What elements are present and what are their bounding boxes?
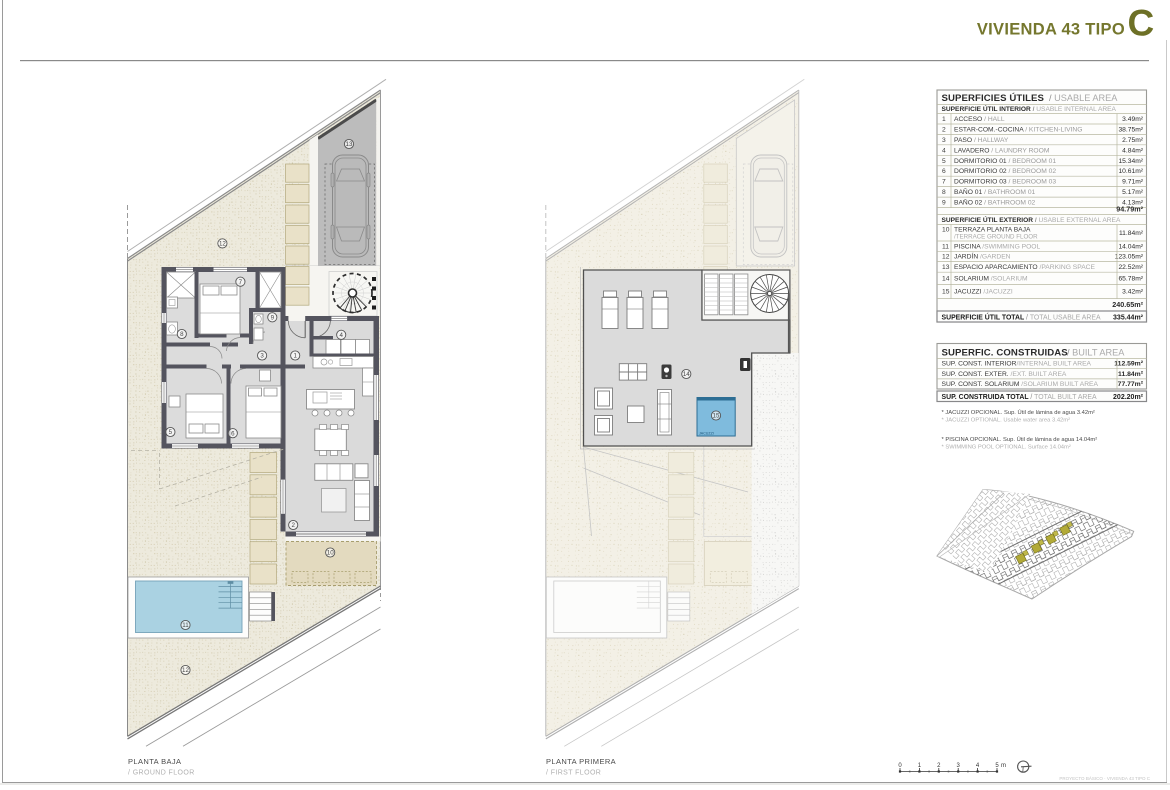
svg-text:112.59m²: 112.59m² <box>1114 361 1143 368</box>
svg-text:240.65m²: 240.65m² <box>1112 300 1143 309</box>
svg-text:5: 5 <box>169 429 173 436</box>
svg-text:7: 7 <box>942 179 946 186</box>
svg-text:PASO / HALLWAY: PASO / HALLWAY <box>954 137 1009 144</box>
svg-text:* JACUZZI OPTIONAL. Usable wat: * JACUZZI OPTIONAL. Usable water area 3.… <box>942 418 1071 424</box>
svg-text:12: 12 <box>182 667 189 674</box>
svg-text:2.75m²: 2.75m² <box>1122 137 1144 144</box>
svg-text:11: 11 <box>942 243 949 250</box>
svg-text:2: 2 <box>942 126 946 133</box>
svg-text:SUPERFICIES ÚTILES: SUPERFICIES ÚTILES <box>942 92 1045 104</box>
svg-text:/ FIRST FLOOR: / FIRST FLOOR <box>546 770 601 777</box>
svg-text:65.78m²: 65.78m² <box>1118 276 1143 283</box>
svg-text:3: 3 <box>260 353 264 360</box>
svg-text:PLANTA PRIMERA: PLANTA PRIMERA <box>546 757 616 766</box>
svg-text:94.79m²: 94.79m² <box>1116 205 1143 214</box>
svg-text:15.34m²: 15.34m² <box>1118 158 1143 165</box>
svg-text:11.84m²: 11.84m² <box>1118 371 1144 378</box>
svg-text:12: 12 <box>219 241 226 248</box>
svg-text:38.75m²: 38.75m² <box>1118 126 1143 133</box>
svg-text:SUPERFICIE ÚTIL TOTAL / TOTAL: SUPERFICIE ÚTIL TOTAL / TOTAL USABLE ARE… <box>942 313 1101 322</box>
svg-text:15: 15 <box>713 413 720 420</box>
svg-text:SUP. CONST. INTERIOR/INTERNAL: SUP. CONST. INTERIOR/INTERNAL BUILT AREA <box>942 361 1092 368</box>
svg-text:DORMITORIO 03 / BEDROOM 03: DORMITORIO 03 / BEDROOM 03 <box>954 179 1056 186</box>
svg-text:12: 12 <box>942 254 950 261</box>
svg-text:10: 10 <box>327 550 334 557</box>
svg-text:ESTAR-COM.-COCINA / KITCHEN-LI: ESTAR-COM.-COCINA / KITCHEN-LIVING <box>954 126 1082 133</box>
svg-text:14: 14 <box>942 276 950 283</box>
svg-text:14.04m²: 14.04m² <box>1118 243 1143 250</box>
svg-text:77.77m²: 77.77m² <box>1118 381 1144 388</box>
svg-text:2: 2 <box>291 522 295 529</box>
svg-text:4.84m²: 4.84m² <box>1122 147 1144 154</box>
svg-text:4: 4 <box>942 147 946 154</box>
svg-text:* PISCINA OPCIONAL. Sup. Útil: * PISCINA OPCIONAL. Sup. Útil de lámina … <box>942 436 1098 443</box>
svg-text:1: 1 <box>942 116 946 123</box>
svg-text:5.17m²: 5.17m² <box>1122 189 1144 196</box>
svg-text:VIVIENDA 43 TIPO: VIVIENDA 43 TIPO <box>977 21 1125 39</box>
svg-text:4: 4 <box>339 332 343 339</box>
svg-text:15: 15 <box>942 289 950 296</box>
svg-text:13: 13 <box>346 141 353 148</box>
svg-text:335.44m²: 335.44m² <box>1113 315 1144 322</box>
svg-text:14: 14 <box>683 371 690 378</box>
svg-text:* JACUZZI OPCIONAL. Sup. Útil: * JACUZZI OPCIONAL. Sup. Útil de lámina … <box>942 409 1095 416</box>
svg-text:DORMITORIO 01 / BEDROOM 01: DORMITORIO 01 / BEDROOM 01 <box>954 158 1056 165</box>
svg-text:6: 6 <box>231 430 235 437</box>
svg-text:SUPERFICIE ÚTIL INTERIOR / USA: SUPERFICIE ÚTIL INTERIOR / USABLE INTERN… <box>942 104 1117 113</box>
svg-text:3.42m²: 3.42m² <box>1122 289 1144 296</box>
svg-text:1: 1 <box>293 353 297 360</box>
svg-text:202.20m²: 202.20m² <box>1113 394 1144 401</box>
svg-text:/ USABLE AREA: / USABLE AREA <box>1049 93 1118 103</box>
svg-text:/ BUILT AREA: / BUILT AREA <box>1067 348 1125 358</box>
svg-text:11.84m²: 11.84m² <box>1119 230 1144 237</box>
svg-text:3.49m²: 3.49m² <box>1122 116 1144 123</box>
svg-text:ESPACIO APARCAMIENTO /PARKING: ESPACIO APARCAMIENTO /PARKING SPACE <box>954 264 1096 271</box>
svg-text:BAÑO 02 / BATHROOM 02: BAÑO 02 / BATHROOM 02 <box>954 198 1036 207</box>
svg-text:8: 8 <box>942 189 946 196</box>
svg-text:SUP. CONSTRUIDA TOTAL / TOTAL: SUP. CONSTRUIDA TOTAL / TOTAL BUILT AREA <box>942 394 1097 401</box>
svg-text:9: 9 <box>942 200 946 207</box>
svg-text:DORMITORIO 02 / BEDROOM 02: DORMITORIO 02 / BEDROOM 02 <box>954 168 1056 175</box>
svg-text:ACCESO / HALL: ACCESO / HALL <box>954 116 1005 123</box>
svg-text:m: m <box>1001 763 1006 769</box>
svg-text:11: 11 <box>182 622 189 629</box>
svg-text:/TERRACE GROUND FLOOR: /TERRACE GROUND FLOOR <box>954 234 1038 241</box>
svg-text:JACUZZI /JACUZZI: JACUZZI /JACUZZI <box>954 289 1013 296</box>
svg-text:JARDÍN /GARDEN: JARDÍN /GARDEN <box>954 252 1011 261</box>
svg-text:* SWIMMING POOL OPTIONAL. Surf: * SWIMMING POOL OPTIONAL. Surface 14.04m… <box>942 445 1071 451</box>
svg-text:10: 10 <box>942 227 950 234</box>
svg-text:3: 3 <box>942 137 946 144</box>
svg-text:JACUZZI: JACUZZI <box>699 432 714 436</box>
svg-text:7: 7 <box>239 279 243 286</box>
svg-text:C: C <box>1128 3 1155 44</box>
svg-text:BAÑO 01 / BATHROOM 01: BAÑO 01 / BATHROOM 01 <box>954 187 1036 196</box>
svg-text:8: 8 <box>180 331 184 338</box>
svg-text:SUP. CONST. SOLARIUM /SOLARIUM: SUP. CONST. SOLARIUM /SOLARIUM BUILT ARE… <box>942 381 1099 388</box>
svg-text:PROYECTO BÁSICO · VIVIENDA 43: PROYECTO BÁSICO · VIVIENDA 43 TIPO C <box>1059 775 1150 781</box>
svg-text:9.71m²: 9.71m² <box>1122 179 1144 186</box>
svg-text:SUPERFIC. CONSTRUIDAS: SUPERFIC. CONSTRUIDAS <box>942 348 1069 359</box>
svg-text:22.52m²: 22.52m² <box>1118 264 1143 271</box>
svg-text:SUP. CONST. EXTER. /EXT. BUILT: SUP. CONST. EXTER. /EXT. BUILT AREA <box>942 371 1067 378</box>
svg-text:SOLARIUM /SOLARIUM: SOLARIUM /SOLARIUM <box>954 276 1028 283</box>
svg-text:9: 9 <box>271 314 275 321</box>
svg-text:TERRAZA PLANTA BAJA: TERRAZA PLANTA BAJA <box>954 227 1031 234</box>
svg-text:10.61m²: 10.61m² <box>1118 168 1143 175</box>
svg-text:PISCINA /SWIMMING POOL: PISCINA /SWIMMING POOL <box>954 243 1040 250</box>
svg-text:/ GROUND FLOOR: / GROUND FLOOR <box>128 770 195 777</box>
svg-text:SUPERFICIE ÚTIL EXTERIOR / USA: SUPERFICIE ÚTIL EXTERIOR / USABLE EXTERN… <box>942 215 1121 224</box>
svg-text:LAVADERO / LAUNDRY ROOM: LAVADERO / LAUNDRY ROOM <box>954 147 1050 154</box>
svg-text:6: 6 <box>942 168 946 175</box>
svg-text:123.05m²: 123.05m² <box>1115 254 1144 261</box>
svg-text:PLANTA BAJA: PLANTA BAJA <box>128 757 181 766</box>
svg-text:13: 13 <box>942 264 950 271</box>
svg-text:5: 5 <box>942 158 946 165</box>
